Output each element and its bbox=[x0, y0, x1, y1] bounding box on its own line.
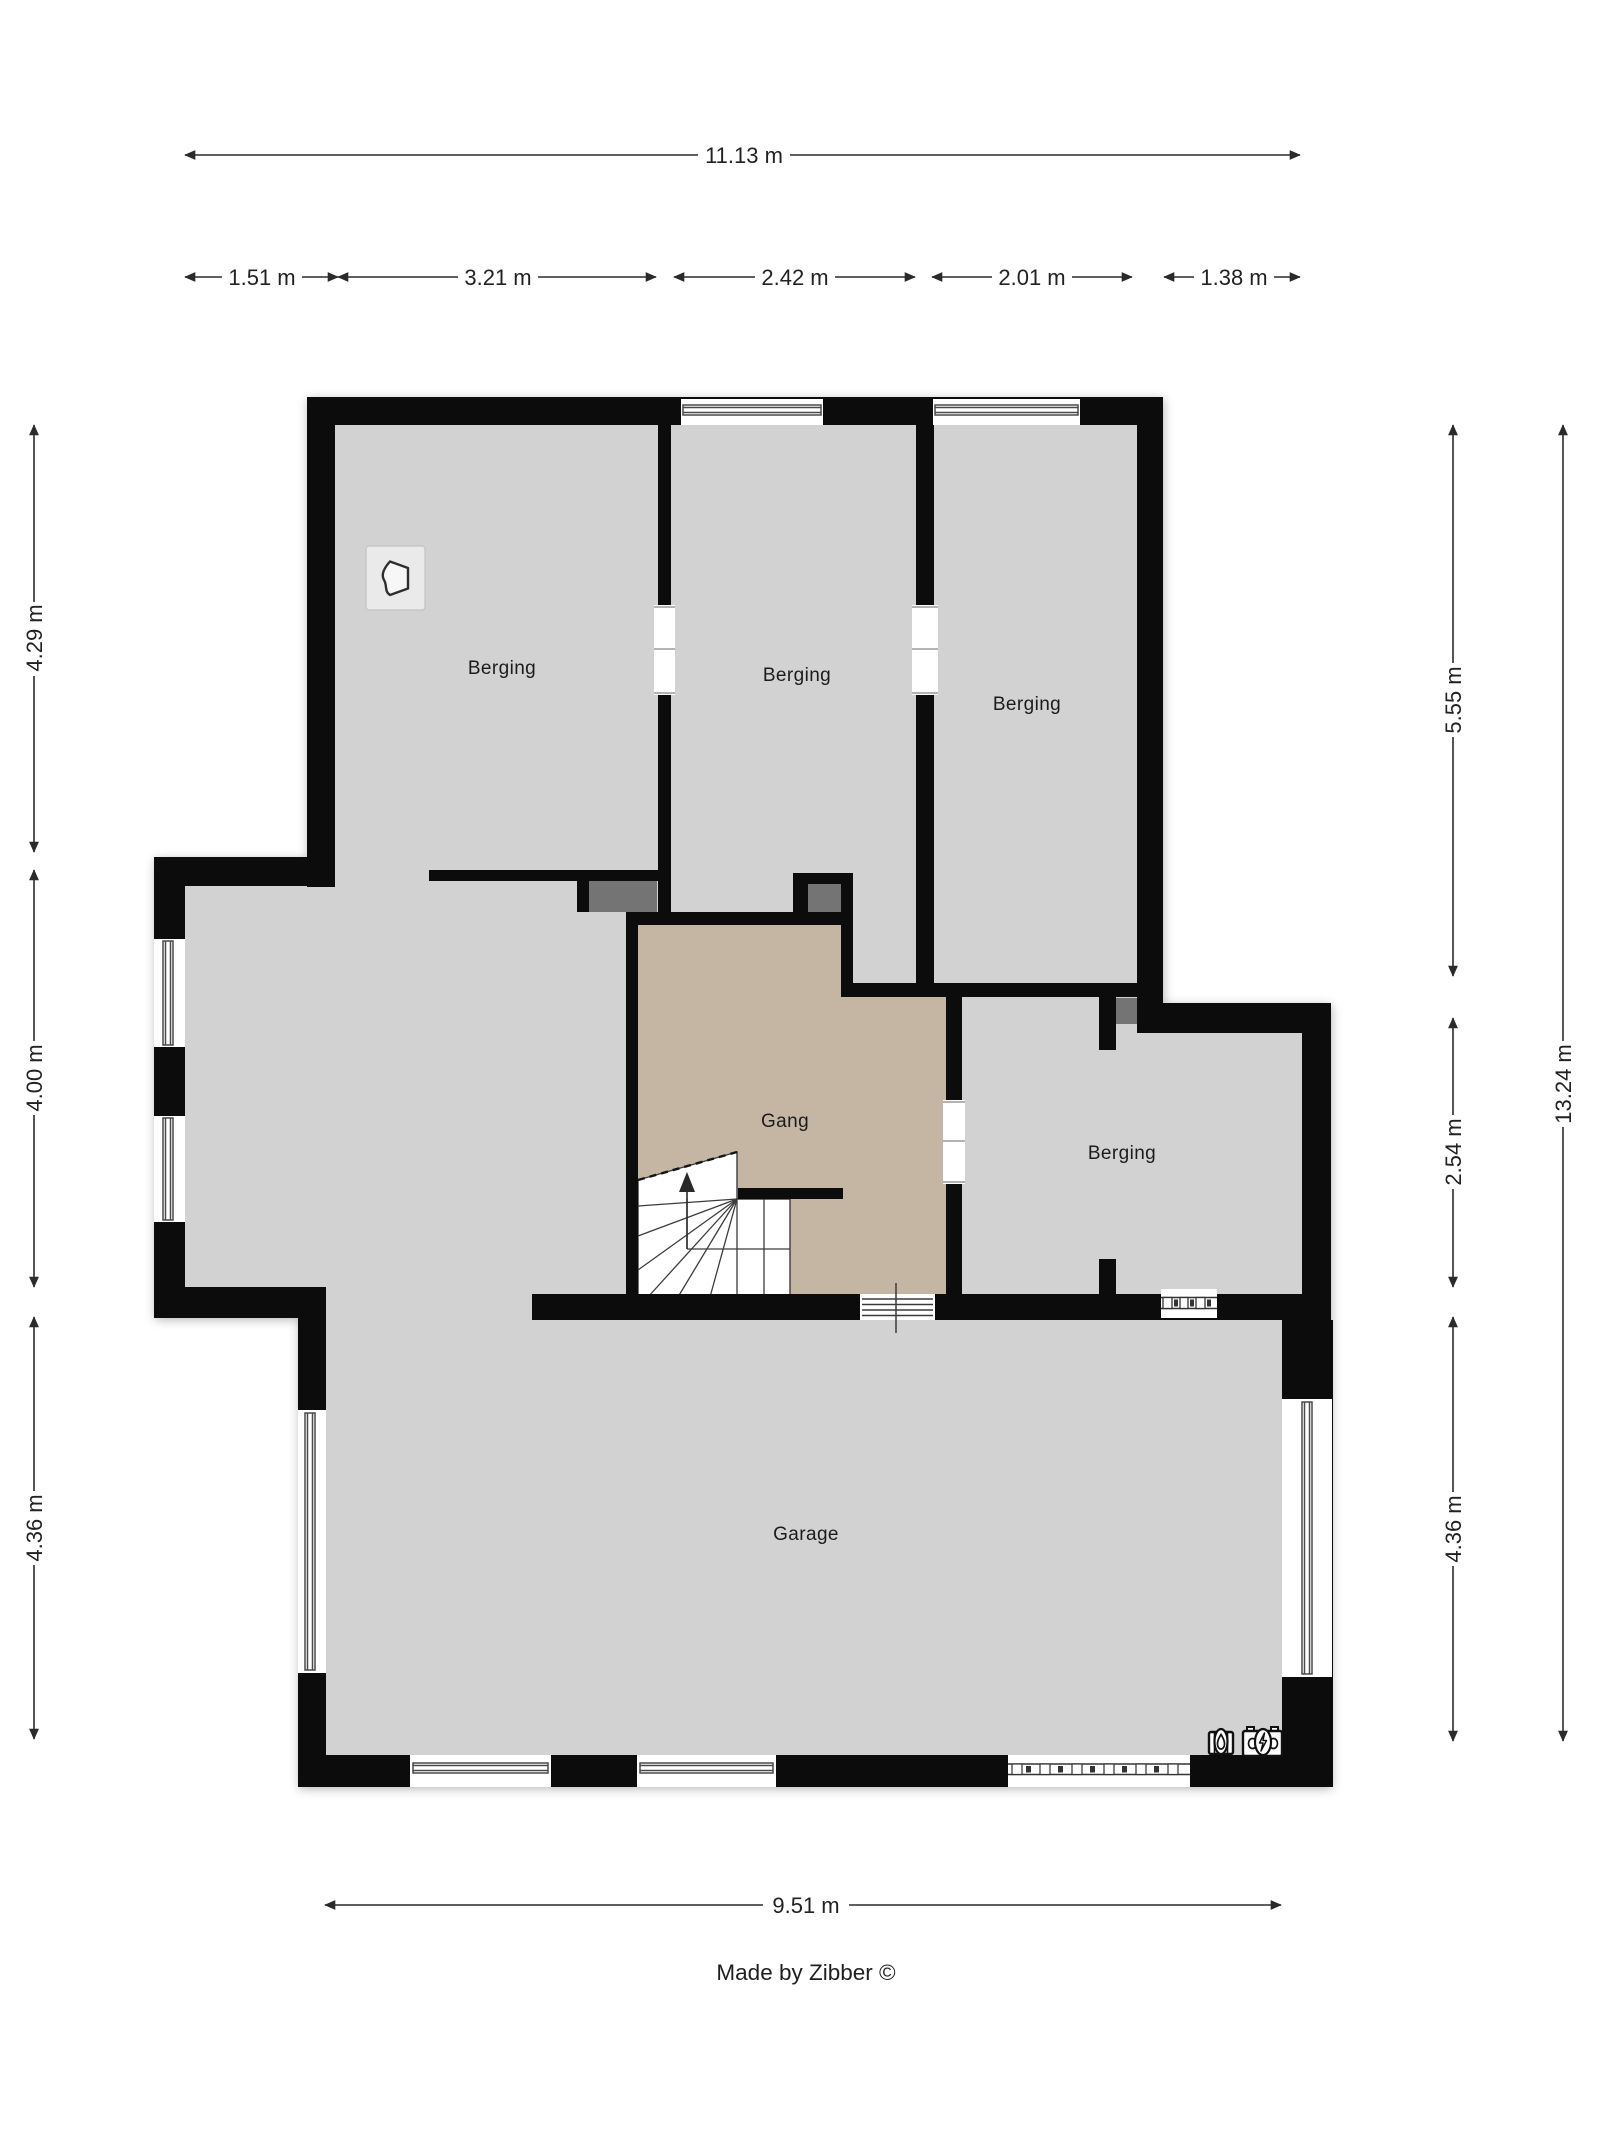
svg-text:9.51 m: 9.51 m bbox=[772, 1893, 839, 1918]
svg-text:11.13 m: 11.13 m bbox=[705, 143, 783, 168]
svg-text:Garage: Garage bbox=[773, 1524, 839, 1545]
svg-text:Berging: Berging bbox=[993, 694, 1061, 715]
svg-text:5.55 m: 5.55 m bbox=[1441, 666, 1466, 733]
svg-text:2.54 m: 2.54 m bbox=[1441, 1118, 1466, 1185]
svg-text:1.38 m: 1.38 m bbox=[1200, 265, 1267, 290]
svg-text:1.51 m: 1.51 m bbox=[228, 265, 295, 290]
svg-text:3.21 m: 3.21 m bbox=[464, 265, 531, 290]
svg-text:13.24 m: 13.24 m bbox=[1551, 1044, 1576, 1124]
svg-text:Gang: Gang bbox=[761, 1111, 809, 1132]
svg-text:4.36 m: 4.36 m bbox=[1441, 1495, 1466, 1562]
svg-text:2.42 m: 2.42 m bbox=[761, 265, 828, 290]
svg-text:2.01 m: 2.01 m bbox=[998, 265, 1065, 290]
svg-text:Berging: Berging bbox=[468, 658, 536, 679]
svg-text:4.00 m: 4.00 m bbox=[22, 1044, 47, 1111]
svg-text:4.36 m: 4.36 m bbox=[22, 1494, 47, 1561]
svg-text:4.29 m: 4.29 m bbox=[22, 604, 47, 671]
svg-text:Berging: Berging bbox=[763, 665, 831, 686]
svg-text:Berging: Berging bbox=[1088, 1143, 1156, 1164]
svg-text:Made by Zibber ©: Made by Zibber © bbox=[716, 1960, 896, 1985]
